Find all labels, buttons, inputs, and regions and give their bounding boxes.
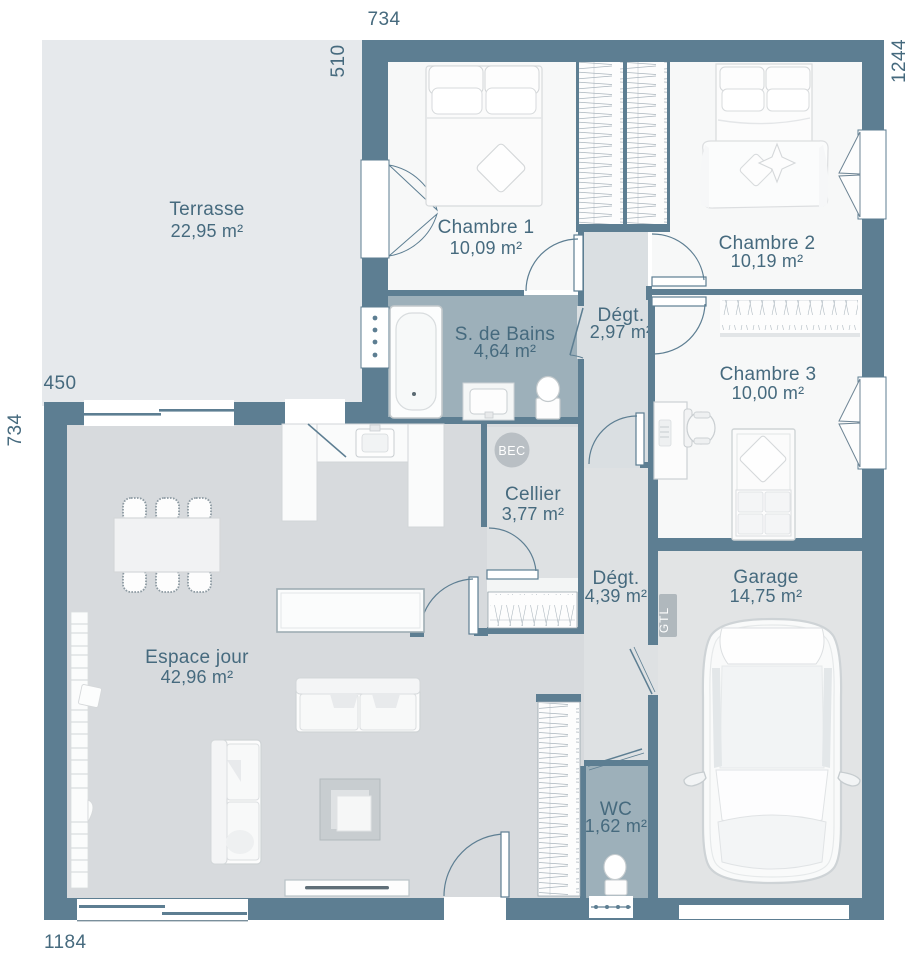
- svg-text:10,09 m²: 10,09 m²: [450, 238, 523, 258]
- svg-text:4,64 m²: 4,64 m²: [474, 341, 536, 361]
- svg-text:510: 510: [328, 45, 349, 78]
- svg-text:3,77 m²: 3,77 m²: [502, 504, 564, 524]
- svg-text:Terrasse: Terrasse: [169, 199, 244, 220]
- svg-text:1184: 1184: [44, 932, 86, 953]
- svg-text:Espace jour: Espace jour: [145, 647, 249, 668]
- svg-text:Chambre 3: Chambre 3: [720, 364, 817, 385]
- svg-text:2,97 m²: 2,97 m²: [590, 322, 652, 342]
- svg-text:4,39 m²: 4,39 m²: [585, 586, 647, 606]
- svg-text:BEC: BEC: [498, 444, 525, 458]
- svg-text:1,62 m²: 1,62 m²: [585, 816, 647, 836]
- svg-text:Garage: Garage: [733, 567, 798, 588]
- svg-text:42,96 m²: 42,96 m²: [161, 667, 234, 687]
- svg-text:734: 734: [5, 414, 26, 447]
- svg-text:22,95 m²: 22,95 m²: [171, 221, 244, 241]
- svg-text:Chambre 1: Chambre 1: [438, 217, 535, 238]
- svg-text:10,00 m²: 10,00 m²: [732, 383, 805, 403]
- svg-text:450: 450: [44, 373, 77, 394]
- svg-text:734: 734: [368, 9, 401, 30]
- svg-text:10,19 m²: 10,19 m²: [731, 251, 804, 271]
- svg-text:Cellier: Cellier: [505, 484, 561, 505]
- svg-text:14,75 m²: 14,75 m²: [730, 586, 803, 606]
- svg-text:1244: 1244: [889, 39, 910, 83]
- svg-text:GTL: GTL: [657, 607, 671, 633]
